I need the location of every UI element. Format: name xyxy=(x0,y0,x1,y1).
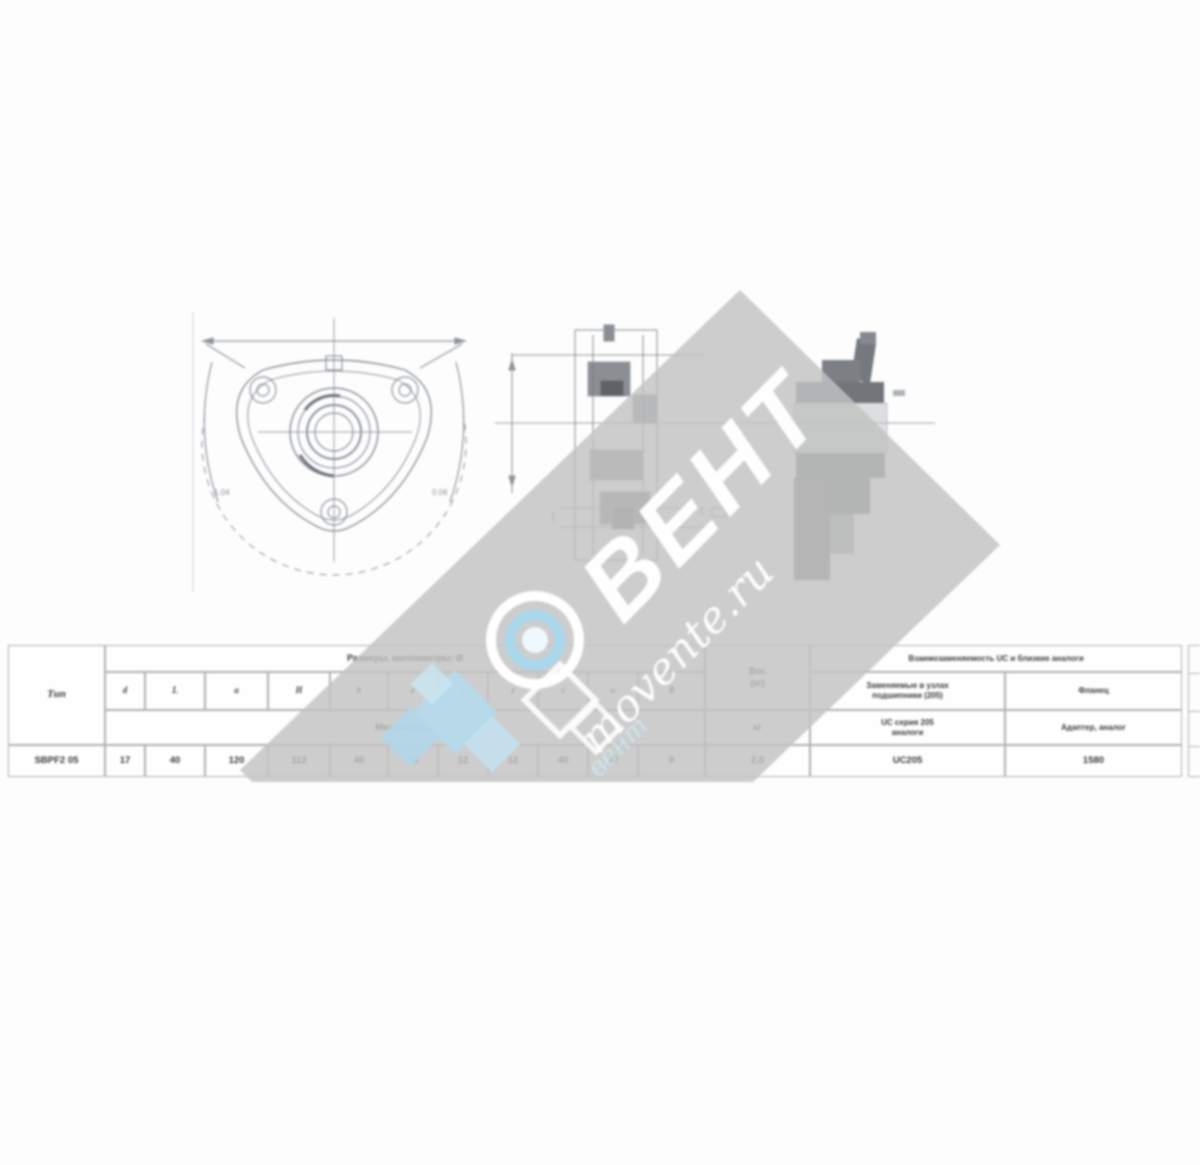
product-image: 1.04 0.06 A Тип SBPF2 05 Размеры, миллим… xyxy=(0,0,1200,782)
catalog-page: 1.04 0.06 A Тип SBPF2 05 Размеры, миллим… xyxy=(0,0,1200,1165)
